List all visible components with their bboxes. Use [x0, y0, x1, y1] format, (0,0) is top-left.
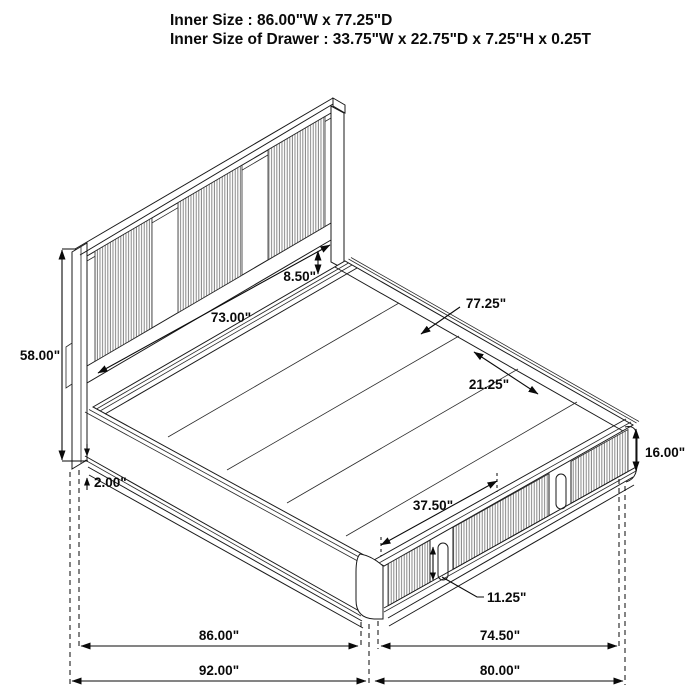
- headboard-right-post: [331, 106, 344, 269]
- dim-base-height: 16.00": [636, 429, 685, 471]
- dim-label-inner-width: 86.00": [199, 628, 239, 643]
- dim-base-recess: 2.00": [87, 444, 127, 490]
- dim-label-inner-depth: 77.25": [466, 296, 506, 311]
- dim-label-overall-width: 92.00": [199, 663, 239, 678]
- bed-dimension-diagram: Inner Size : 86.00"W x 77.25"D Inner Siz…: [0, 0, 700, 700]
- dim-label-headboard-height: 58.00": [20, 348, 60, 363]
- headboard-left-post: [72, 243, 87, 469]
- headboard-left-bracket: [66, 343, 72, 388]
- dim-foot-width: 74.50": [381, 628, 617, 646]
- dim-overall-width: 92.00": [72, 663, 366, 681]
- dim-label-headboard-gap: 8.50": [283, 269, 316, 284]
- dim-label-overall-length: 80.00": [480, 663, 520, 678]
- header: Inner Size : 86.00"W x 77.25"D Inner Siz…: [170, 12, 591, 48]
- header-line-1: Inner Size : 86.00"W x 77.25"D: [170, 12, 392, 29]
- dim-label-headboard-inner-width: 73.00": [211, 310, 251, 325]
- foot-left-corner-post: [356, 554, 383, 619]
- headboard-rib-panel-1: [95, 218, 152, 361]
- dim-overall-length: 80.00": [375, 663, 623, 681]
- dim-inner-width: 86.00": [81, 628, 358, 646]
- header-line-2: Inner Size of Drawer : 33.75"W x 22.75"D…: [170, 31, 591, 48]
- platform-deck: [85, 258, 639, 572]
- dim-label-slat-width: 21.25": [469, 377, 509, 392]
- deck-outline: [93, 261, 633, 566]
- dim-label-foot-width: 74.50": [480, 628, 520, 643]
- drawer-handle-slot-2: [556, 474, 566, 509]
- dim-label-base-recess: 2.00": [94, 475, 127, 490]
- dim-label-drawer-span: 37.50": [413, 498, 453, 513]
- bed-dimension-diagram-page: Inner Size : 86.00"W x 77.25"D Inner Siz…: [0, 0, 700, 700]
- dim-label-handle-height: 11.25": [487, 590, 526, 605]
- headboard-rib-panel-2: [178, 165, 242, 313]
- dim-label-base-height: 16.00": [645, 445, 685, 460]
